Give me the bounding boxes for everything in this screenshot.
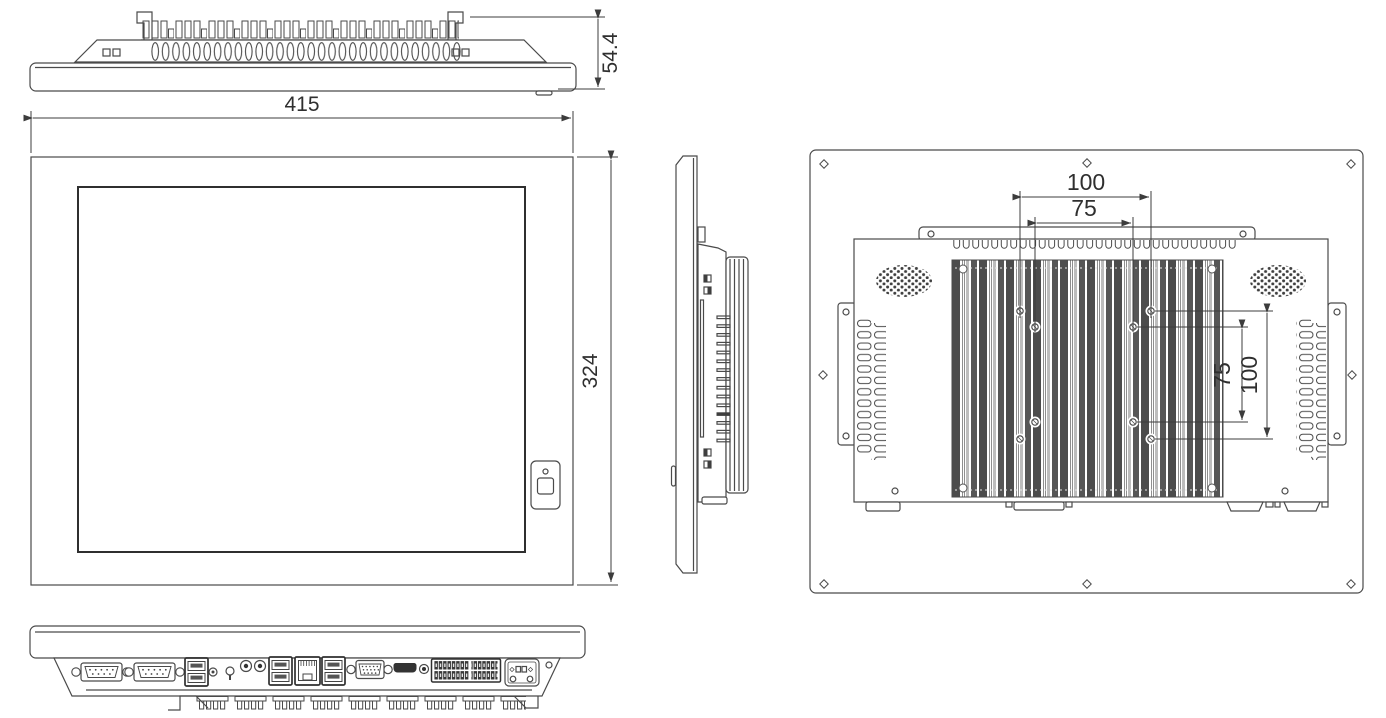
dim-label-vesa-side-100: 100 — [1236, 356, 1262, 394]
bottom-fins-row — [168, 696, 538, 712]
bottom-bezel-band — [30, 626, 585, 658]
side-body — [698, 244, 726, 502]
usb-dual-port-3 — [322, 657, 345, 685]
side-view — [672, 156, 749, 573]
dim-label-vesa-side-75: 75 — [1209, 362, 1235, 388]
rear-speaker-right — [1250, 265, 1306, 297]
serial-port-1 — [72, 663, 131, 681]
top-view-heatsink-teeth — [137, 12, 463, 40]
top-view-tab — [536, 91, 552, 95]
ethernet-port — [295, 657, 320, 685]
dimension-height: 324 — [577, 157, 618, 585]
dim-label-vesa-top-100: 100 — [1067, 169, 1105, 195]
rear-vents-left — [856, 318, 886, 460]
rear-right-ear — [1328, 303, 1346, 445]
rear-vents-right — [1296, 318, 1326, 460]
drawing-canvas: 54.4 415 324 — [0, 0, 1386, 718]
front-bezel — [31, 157, 573, 585]
usb-dual-port-2 — [269, 657, 292, 685]
top-view-fin-loops — [150, 41, 462, 61]
rear-left-ear — [838, 303, 856, 445]
rear-castellation — [952, 240, 1237, 253]
side-power-button — [672, 466, 676, 486]
rear-speaker-left — [876, 265, 932, 297]
terminal-block — [432, 659, 501, 682]
front-view — [31, 157, 573, 585]
side-top-step — [698, 227, 705, 242]
power-input-connector — [505, 659, 539, 686]
rear-heatsink — [952, 260, 1223, 497]
rear-view: 100 75 100 75 — [810, 150, 1363, 593]
bottom-view — [30, 626, 585, 712]
usb-dual-port-1 — [185, 658, 208, 686]
dim-label-vesa-top-75: 75 — [1071, 195, 1097, 221]
front-power-button — [531, 461, 560, 509]
dim-label-width: 415 — [284, 93, 319, 116]
top-view — [30, 12, 576, 95]
dim-label-height: 324 — [579, 353, 602, 388]
serial-port-2 — [125, 663, 184, 681]
side-foot — [702, 497, 727, 504]
dimension-width: 415 — [31, 93, 573, 153]
technical-drawing: 54.4 415 324 — [0, 0, 1386, 718]
side-heatsink-fins — [726, 257, 748, 493]
dim-label-depth: 54.4 — [599, 32, 622, 73]
hdmi-port — [394, 664, 416, 673]
